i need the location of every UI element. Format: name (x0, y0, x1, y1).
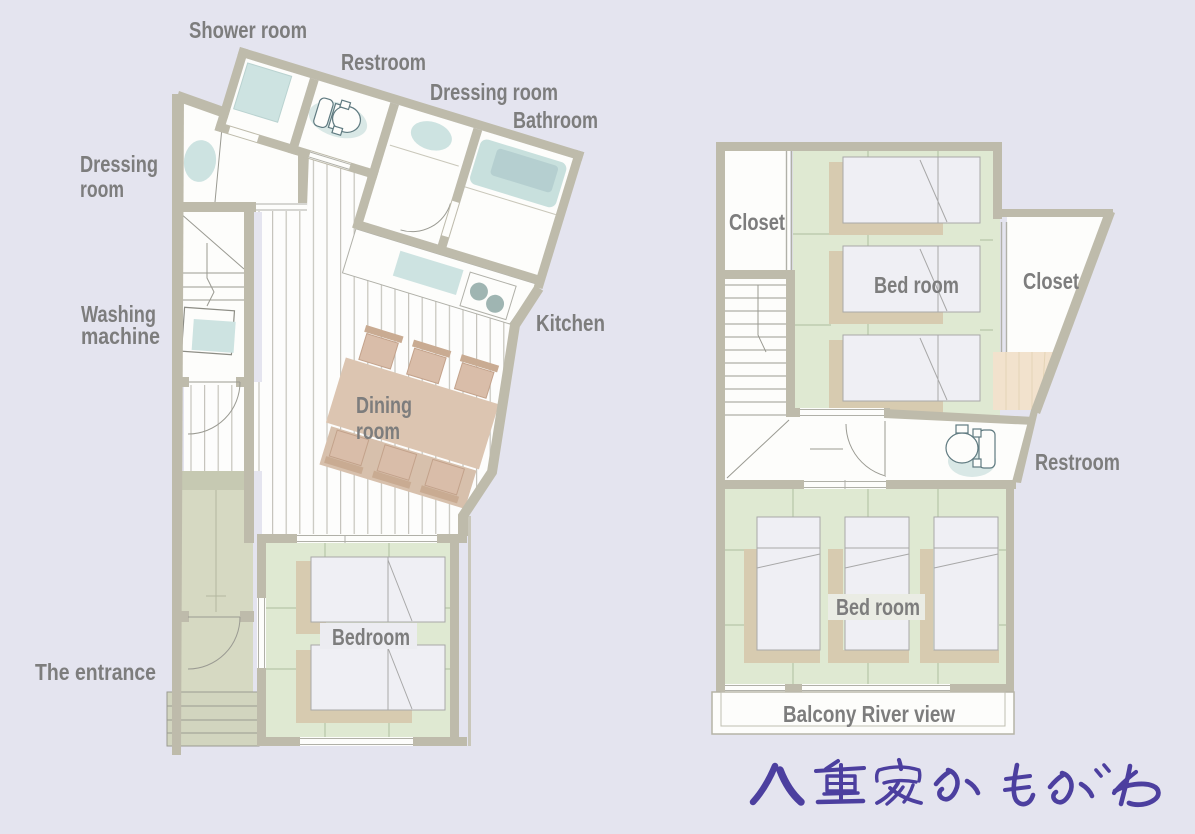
svg-text:Dining: Dining (356, 392, 412, 418)
svg-text:Shower room: Shower room (189, 17, 307, 43)
svg-text:Bed room: Bed room (874, 272, 959, 298)
svg-text:The entrance: The entrance (35, 659, 156, 685)
svg-text:Restroom: Restroom (341, 49, 426, 75)
svg-text:machine: machine (81, 323, 160, 349)
svg-text:Kitchen: Kitchen (536, 310, 605, 336)
svg-text:room: room (356, 418, 400, 444)
svg-text:Dressing room: Dressing room (430, 79, 558, 105)
svg-text:Closet: Closet (729, 209, 785, 235)
svg-text:room: room (80, 176, 124, 202)
svg-text:Bedroom: Bedroom (332, 624, 410, 650)
svg-text:Restroom: Restroom (1035, 449, 1120, 475)
svg-text:Closet: Closet (1023, 268, 1079, 294)
svg-text:Dressing: Dressing (80, 151, 158, 177)
svg-text:Balcony River view: Balcony River view (783, 701, 955, 727)
svg-text:Bathroom: Bathroom (513, 107, 598, 133)
svg-text:Bed room: Bed room (836, 594, 920, 620)
